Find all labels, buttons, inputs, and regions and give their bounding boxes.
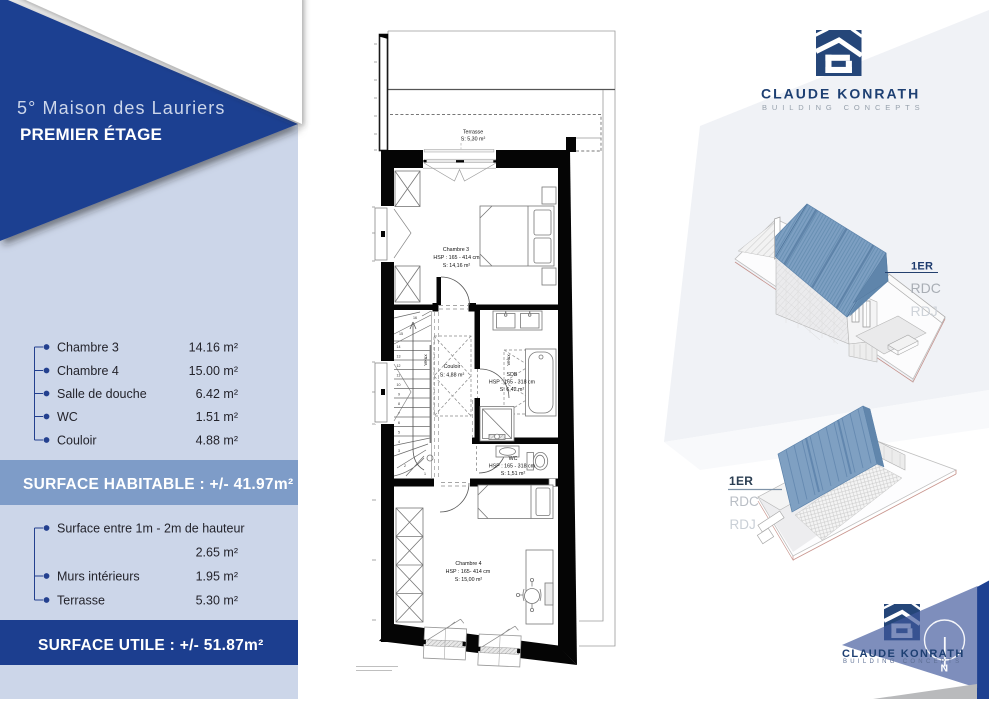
svg-text:PREMIER ÉTAGE: PREMIER ÉTAGE (20, 125, 162, 144)
svg-text:RDJ: RDJ (730, 517, 756, 532)
svg-text:SDB: SDB (507, 372, 518, 378)
svg-text:2.65 m²: 2.65 m² (196, 546, 238, 560)
svg-text:Terrasse: Terrasse (463, 130, 483, 136)
svg-text:10: 10 (397, 383, 401, 387)
svg-text:1.95 m²: 1.95 m² (196, 570, 238, 584)
svg-text:Murs intérieurs: Murs intérieurs (57, 570, 140, 584)
svg-text:2: 2 (404, 464, 406, 468)
svg-text:S: 15,00 m²: S: 15,00 m² (455, 577, 483, 583)
svg-text:3: 3 (398, 449, 400, 453)
svg-text:12: 12 (397, 364, 401, 368)
svg-text:WC: WC (509, 456, 518, 462)
svg-text:1ER: 1ER (911, 261, 933, 273)
svg-text:SURFACE UTILE : +/- 51.87m²: SURFACE UTILE : +/- 51.87m² (38, 637, 264, 654)
svg-text:8: 8 (398, 402, 400, 406)
svg-text:RDC: RDC (911, 280, 941, 296)
svg-text:HSP : 165 - 318 cm: HSP : 165 - 318 cm (489, 380, 536, 386)
svg-text:BUILDING CONCEPTS: BUILDING CONCEPTS (762, 103, 924, 112)
svg-text:HSP : 165- 414 cm: HSP : 165- 414 cm (446, 569, 491, 575)
svg-text:15.00 m²: 15.00 m² (189, 364, 238, 378)
svg-text:6: 6 (398, 421, 400, 425)
svg-text:Couloir: Couloir (57, 434, 97, 448)
svg-text:1: 1 (424, 472, 426, 476)
svg-text:15: 15 (399, 332, 403, 336)
svg-text:S: 4,88 m²: S: 4,88 m² (440, 373, 465, 379)
svg-text:RDJ: RDJ (911, 303, 938, 319)
svg-text:Chambre 4: Chambre 4 (57, 364, 119, 378)
svg-text:Surface entre 1m - 2m de haute: Surface entre 1m - 2m de hauteur (57, 522, 245, 536)
svg-text:4: 4 (398, 440, 400, 444)
svg-text:S: 1,51 m²: S: 1,51 m² (501, 471, 526, 477)
svg-text:CLAUDE KONRATH: CLAUDE KONRATH (761, 86, 920, 102)
svg-text:S: 5,30 m²: S: 5,30 m² (461, 137, 486, 143)
svg-text:S: 14,16 m²: S: 14,16 m² (443, 263, 471, 269)
svg-text:Chambre 3: Chambre 3 (57, 341, 119, 355)
svg-text:WC: WC (57, 410, 78, 424)
svg-text:5: 5 (398, 431, 400, 435)
svg-text:14: 14 (397, 345, 401, 349)
svg-text:1ER: 1ER (729, 474, 753, 488)
svg-text:Terrasse: Terrasse (57, 594, 105, 608)
svg-text:4.88 m²: 4.88 m² (196, 434, 238, 448)
svg-text:HSP : 165 - 414 cm: HSP : 165 - 414 cm (433, 255, 480, 261)
svg-text:RDC: RDC (730, 494, 759, 509)
svg-text:14.16 m²: 14.16 m² (189, 341, 238, 355)
svg-text:Velux: Velux (506, 354, 511, 366)
svg-text:5.30 m²: 5.30 m² (196, 594, 238, 608)
svg-text:11: 11 (397, 374, 401, 378)
svg-text:16: 16 (413, 316, 417, 320)
svg-text:HSP : 165 - 318 cm: HSP : 165 - 318 cm (489, 464, 536, 470)
svg-text:SURFACE HABITABLE : +/- 41.97m: SURFACE HABITABLE : +/- 41.97m² (23, 476, 293, 493)
svg-text:9: 9 (398, 393, 400, 397)
svg-text:S: 6,42 m²: S: 6,42 m² (500, 387, 525, 393)
svg-text:BUILDING CONCEPTS: BUILDING CONCEPTS (843, 659, 962, 665)
svg-text:Chambre 4: Chambre 4 (455, 561, 481, 567)
svg-text:1.51 m²: 1.51 m² (196, 410, 238, 424)
svg-text:6.42 m²: 6.42 m² (196, 387, 238, 401)
svg-text:13: 13 (397, 355, 401, 359)
svg-text:Salle de douche: Salle de douche (57, 387, 147, 401)
svg-text:7: 7 (398, 412, 400, 416)
svg-text:Couloir: Couloir (444, 364, 461, 370)
svg-text:Chambre 3: Chambre 3 (443, 247, 469, 253)
svg-text:5° Maison des Lauriers: 5° Maison des Lauriers (17, 98, 226, 118)
